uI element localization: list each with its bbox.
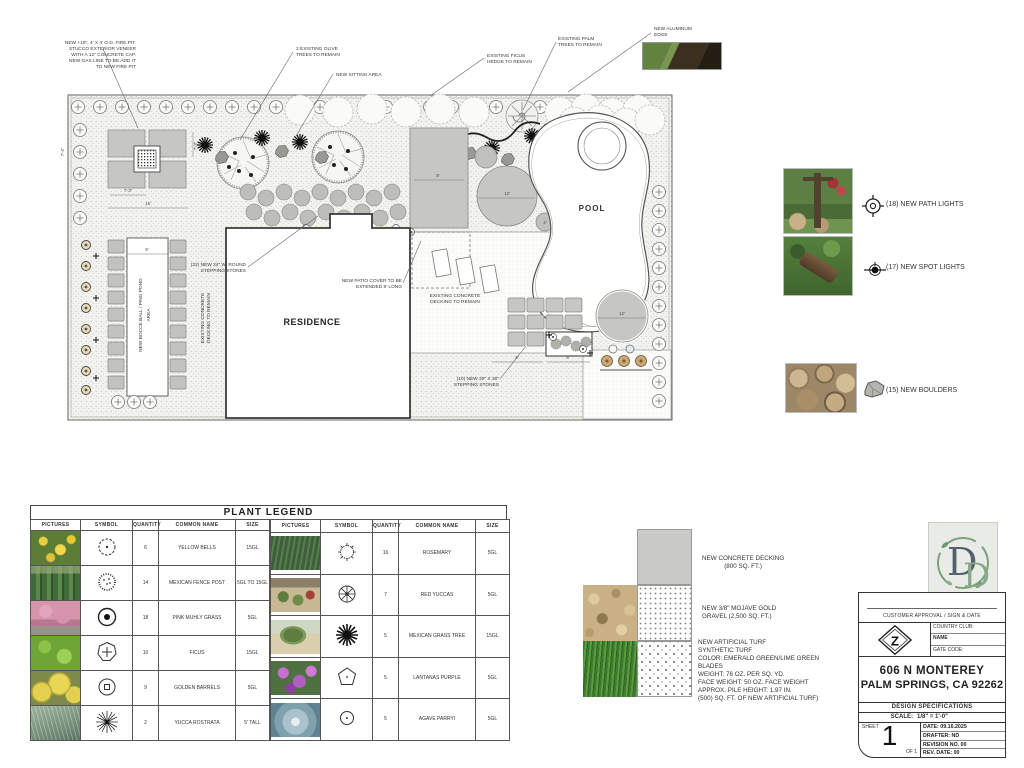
red-yuccas-symbol [334, 581, 360, 607]
rev-date-row: REV. DATE: 00 [921, 749, 1005, 757]
client-name[interactable]: NAME [931, 634, 1005, 645]
revision-row: REVISION NO. 00 [921, 741, 1005, 750]
mexican-fence-post-photo [31, 566, 80, 600]
design-specs-header: DESIGN SPECIFICATIONS [859, 703, 1005, 713]
mexican-fence-post-symbol [94, 569, 120, 595]
svg-text:WITH A 12" CONCRETE CAP.: WITH A 12" CONCRETE CAP. [71, 52, 136, 58]
olive-tree-symbol [217, 137, 269, 189]
materials-legend: NEW CONCRETE DECKING (800 SQ. FT.) NEW 3… [580, 525, 900, 725]
svg-text:12': 12' [619, 311, 625, 316]
plant-row: 10 FICUS 15GL [31, 636, 270, 671]
sheet-number: 1 [859, 720, 920, 752]
plant-row: 6 YELLOW BELLS 15GL [31, 531, 270, 566]
golden-barrels-photo [31, 671, 80, 705]
path-light-photo [783, 168, 853, 234]
spot-lights-label: (17) NEW SPOT LIGHTS [886, 264, 965, 271]
col-symbol: SYMBOL [321, 520, 373, 533]
address-line1: 606 N MONTEREY [859, 665, 1005, 677]
yellow-bells-symbol [94, 534, 120, 560]
z-logo: Z [859, 623, 931, 656]
pink-muhly-grass-symbol [94, 604, 120, 630]
spot-light-photo [783, 236, 853, 296]
rosemary-symbol [334, 539, 360, 565]
scale-value: 1/8" = 1'-0" [917, 713, 1005, 722]
gravel-label: NEW 3/8" MOJAVE GOLD GRAVEL (2,500 SQ. F… [702, 605, 776, 621]
svg-text:2 EXISTING OLIVE: 2 EXISTING OLIVE [296, 46, 338, 52]
col-pictures: PICTURES [31, 520, 81, 531]
turf-swatch [637, 641, 692, 697]
spot-light-icon [862, 257, 888, 283]
svg-text:EXISTING PALM: EXISTING PALM [558, 36, 594, 42]
svg-text:NEW PATIO COVER TO BE: NEW PATIO COVER TO BE [342, 278, 402, 284]
svg-text:AREA: AREA [146, 308, 152, 322]
turf-photo [583, 641, 638, 697]
svg-text:(22) NEW 24" W. ROUND: (22) NEW 24" W. ROUND [191, 262, 247, 268]
svg-text:HEDGE TO REMAIN: HEDGE TO REMAIN [487, 59, 532, 65]
yucca-rostrata-photo [31, 706, 80, 740]
svg-text:NEW +18", 4' X 4' O.D. FIRE PI: NEW +18", 4' X 4' O.D. FIRE PIT. [65, 40, 136, 46]
plant-legend: PLANT LEGEND PICTURES SYMBOL QUANTITY CO… [30, 505, 507, 741]
svg-text:8': 8' [145, 247, 148, 252]
col-size: SIZE [476, 520, 510, 533]
logo-letter-z: Z [890, 633, 898, 648]
plant-row: 5 AGAVE PARRYI 5GL [271, 699, 510, 741]
path-lights-label: (18) NEW PATH LIGHTS [886, 201, 964, 208]
concrete-swatch [637, 529, 692, 585]
pool-label: POOL [579, 204, 606, 213]
agave-parryi-photo [271, 703, 320, 737]
ficus-symbol [94, 639, 120, 665]
svg-text:7'-3": 7'-3" [124, 188, 133, 193]
col-common-name: COMMON NAME [159, 520, 236, 531]
residence-label: RESIDENCE [283, 317, 340, 327]
golden-barrels-symbol [94, 674, 120, 700]
svg-text:DECKING TO REMAIN: DECKING TO REMAIN [206, 293, 212, 343]
plant-row: 5 MEXICAN GRASS TREE 15GL [271, 616, 510, 658]
svg-text:EDGE: EDGE [654, 32, 668, 38]
landscape-plan-sheet: NEW +18", 4' X 4' O.D. FIRE PIT. STUCCO … [0, 0, 1024, 768]
svg-text:TO NEW FIRE PIT: TO NEW FIRE PIT [96, 64, 136, 70]
new-concrete-decking [410, 128, 468, 228]
revision-table: DATE: 09.16.2025 DRAFTER: ND REVISION NO… [921, 723, 1005, 757]
turf-circle-lower [596, 290, 648, 342]
pink-muhly-grass-photo [31, 601, 80, 635]
date-row: DATE: 09.16.2025 [921, 723, 1005, 732]
plant-row: 5 LANTANAS PURPLE 5GL [271, 657, 510, 699]
svg-text:TREES TO REMAIN: TREES TO REMAIN [296, 52, 340, 58]
svg-text:7'-4": 7'-4" [60, 147, 65, 156]
svg-text:STEPPING STONES: STEPPING STONES [201, 268, 246, 274]
rosemary-photo [271, 536, 320, 570]
gravel-swatch [637, 585, 692, 641]
boulder-icon [860, 377, 888, 401]
gravel-photo [583, 585, 638, 641]
yucca-rostrata-symbol [94, 709, 120, 735]
svg-text:EXISTING CONCRETE: EXISTING CONCRETE [430, 293, 481, 299]
plant-table-right: PICTURES SYMBOL QUANTITY COMMON NAME SIZ… [270, 519, 510, 741]
col-size: SIZE [236, 520, 270, 531]
sheet-of-label: OF 1 [906, 749, 917, 755]
plant-row: 7 RED YUCCAS 5GL [271, 574, 510, 616]
col-pictures: PICTURES [271, 520, 321, 533]
col-symbol: SYMBOL [81, 520, 133, 531]
svg-text:EXISTING CONCRETE: EXISTING CONCRETE [200, 293, 206, 344]
plant-row: 18 PINK MUHLY GRASS 5GL [31, 601, 270, 636]
company-logo: D D [928, 522, 998, 602]
project-address: 606 N MONTEREY PALM SPRINGS, CA 92262 [859, 657, 1005, 703]
plant-legend-title: PLANT LEGEND [30, 505, 507, 519]
aluminum-edge-photo [642, 42, 722, 70]
address-line2: PALM SPRINGS, CA 92262 [859, 679, 1005, 691]
col-common-name: COMMON NAME [399, 520, 476, 533]
svg-text:EXTENDED 8' LONG: EXTENDED 8' LONG [356, 284, 402, 290]
yellow-bells-photo [31, 531, 80, 565]
sheet-cell: SHEET 1 OF 1 [859, 723, 921, 757]
drafter-row: DRAFTER: ND [921, 732, 1005, 741]
plant-row: 14 MEXICAN FENCE POST 5GL TO 15GL [31, 566, 270, 601]
country-club-label: COUNTRY CLUB: [931, 623, 1005, 634]
plant-table-left: PICTURES SYMBOL QUANTITY COMMON NAME SIZ… [30, 519, 270, 741]
svg-text:DECKING TO REMAIN: DECKING TO REMAIN [430, 299, 480, 305]
logo-letter-d2: D [963, 556, 990, 596]
plant-row: 16 ROSEMARY 5GL [271, 533, 510, 575]
ficus-photo [31, 636, 80, 670]
svg-text:TREES TO REMAIN: TREES TO REMAIN [558, 42, 602, 48]
svg-text:NEW BOCCE BALL / PING PONG: NEW BOCCE BALL / PING PONG [138, 278, 144, 352]
svg-text:7'-3": 7'-3" [193, 141, 198, 150]
mexican-grass-tree-photo [271, 620, 320, 654]
boulders-label: (15) NEW BOULDERS [886, 387, 957, 394]
svg-text:NEW SITTING AREA: NEW SITTING AREA [336, 72, 382, 78]
lantanas-purple-symbol [334, 664, 360, 690]
svg-text:STUCCO EXTERIOR VENEER: STUCCO EXTERIOR VENEER [69, 46, 137, 52]
col-quantity: QUANTITY [133, 520, 159, 531]
svg-text:EXISTING FICUS: EXISTING FICUS [487, 53, 525, 59]
palm-tree-symbol [506, 100, 538, 132]
site-legend: (18) NEW PATH LIGHTS (17) NEW SPOT LIGHT… [780, 165, 1018, 423]
agave-parryi-symbol [334, 705, 360, 731]
plant-row: 2 YUCCA ROSTRATA 5' TALL [31, 706, 270, 741]
red-yuccas-photo [271, 578, 320, 612]
svg-text:(10) NEW 30" X 30": (10) NEW 30" X 30" [457, 376, 500, 382]
svg-text:9': 9' [436, 173, 439, 178]
lantanas-purple-photo [271, 661, 320, 695]
title-block: CUSTOMER APPROVAL / SIGN & DATE Z COUNTR… [858, 592, 1006, 758]
turf-label: NEW ARTIFICIAL TURF SYNTHETIC TURF COLOR… [698, 639, 819, 703]
approval-label: CUSTOMER APPROVAL / SIGN & DATE [859, 613, 1005, 619]
boulders-photo [785, 363, 857, 413]
signature-line[interactable] [867, 608, 997, 609]
concrete-label: NEW CONCRETE DECKING (800 SQ. FT.) [702, 555, 784, 571]
svg-text:STEPPING STONES: STEPPING STONES [454, 382, 499, 388]
svg-text:15': 15' [145, 201, 151, 206]
path-light-icon [860, 193, 886, 219]
mexican-grass-tree-symbol [334, 622, 360, 648]
plant-row: 9 GOLDEN BARRELS 5GL [31, 671, 270, 706]
svg-text:8': 8' [515, 355, 518, 360]
svg-text:8': 8' [566, 355, 569, 360]
svg-text:4': 4' [543, 220, 546, 225]
svg-text:NEW GAS LINE TO BE ADD IT: NEW GAS LINE TO BE ADD IT [69, 58, 136, 64]
svg-text:12': 12' [504, 191, 510, 196]
col-quantity: QUANTITY [373, 520, 399, 533]
gate-code-label[interactable]: GATE CODE: [931, 646, 1005, 656]
approval-section: CUSTOMER APPROVAL / SIGN & DATE [859, 593, 1005, 623]
svg-text:NEW ALUMINUM: NEW ALUMINUM [654, 26, 692, 32]
